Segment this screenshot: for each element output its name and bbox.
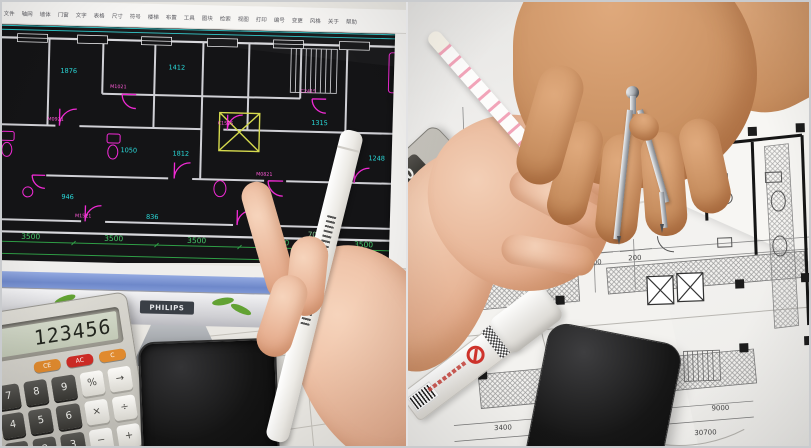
dim-3500: 3500 xyxy=(21,232,41,241)
door-label: M0821 xyxy=(256,171,273,177)
menu-item[interactable]: 视图 xyxy=(238,15,249,23)
dim-500: 500 xyxy=(588,258,602,266)
room-label: 946 xyxy=(61,193,74,201)
dim-3500: 3500 xyxy=(270,238,290,247)
key-9[interactable]: 9 xyxy=(51,374,78,401)
room-label: 1315 xyxy=(311,119,328,127)
door-label: M0921 xyxy=(47,116,64,122)
menu-item[interactable]: 工具 xyxy=(184,14,195,22)
menu-item[interactable]: 变更 xyxy=(292,16,303,24)
menu-item[interactable]: 检索 xyxy=(220,14,231,22)
door-label: C2415 xyxy=(300,89,316,95)
room-label: 1248 xyxy=(368,154,385,162)
key-divide[interactable]: ÷ xyxy=(111,394,138,421)
menu-item[interactable]: 尺寸 xyxy=(112,12,123,20)
menu-item[interactable]: 关于 xyxy=(328,17,339,25)
room-label: 1050 xyxy=(120,146,137,154)
room-label: 1412 xyxy=(169,63,186,71)
photo-collage: 1876 1412 1050 946 1812 1315 1248 836 M0… xyxy=(0,0,811,448)
key-5[interactable]: 5 xyxy=(28,407,55,434)
menu-item[interactable]: 编号 xyxy=(274,16,285,24)
room-label: 1812 xyxy=(172,149,189,157)
dim-3500: 3500 xyxy=(187,236,207,245)
dim-9000: 9000 xyxy=(711,404,729,413)
dim-inner: 7000 xyxy=(308,231,326,239)
smartphone xyxy=(138,338,280,446)
key-percent[interactable]: % xyxy=(79,370,106,397)
monitor-screen: 1876 1412 1050 946 1812 1315 1248 836 M0… xyxy=(2,17,407,263)
dim-3400: 3400 xyxy=(494,423,512,432)
menu-item[interactable]: 表格 xyxy=(94,11,105,19)
key-backspace[interactable]: → xyxy=(107,365,134,392)
monitor-brand-badge: PHILIPS xyxy=(140,300,194,314)
dim-30700: 30700 xyxy=(694,428,717,437)
menu-item[interactable]: 文字 xyxy=(76,11,87,19)
menu-item[interactable]: 帮助 xyxy=(346,18,357,26)
column-markers xyxy=(267,337,391,424)
key-1[interactable]: 1 xyxy=(4,440,31,446)
menu-item[interactable]: 墙体 xyxy=(40,10,51,18)
menu-item[interactable]: 风格 xyxy=(310,17,321,25)
door-label: M1521 xyxy=(75,213,92,219)
door-label: C1515 xyxy=(218,121,234,127)
photo-divider xyxy=(406,2,408,446)
menu-item[interactable]: 轴网 xyxy=(22,10,33,18)
menu-item[interactable]: 楼梯 xyxy=(148,13,159,21)
dim-3500: 3500 xyxy=(104,234,124,243)
key-plus[interactable]: + xyxy=(116,422,143,446)
key-2[interactable]: 2 xyxy=(32,436,59,446)
cad-floorplan-drawing: 1876 1412 1050 946 1812 1315 1248 836 M0… xyxy=(2,19,407,263)
left-photo-cad-monitor-scene: 1876 1412 1050 946 1812 1315 1248 836 M0… xyxy=(2,2,407,446)
door-label: M1021 xyxy=(110,84,127,90)
menu-item[interactable]: 布置 xyxy=(166,13,177,21)
right-photo-blueprint-scene: 500 200 3400 9000 30700 0 0 1 4 xyxy=(407,2,809,446)
cad-viewport: 1876 1412 1050 946 1812 1315 1248 836 M0… xyxy=(2,19,407,263)
key-3[interactable]: 3 xyxy=(60,431,87,446)
menu-item[interactable]: 门窗 xyxy=(58,11,69,19)
key-4[interactable]: 4 xyxy=(2,412,26,439)
room-label: 1876 xyxy=(60,67,77,75)
menu-item[interactable]: 符号 xyxy=(130,12,141,20)
dim-200: 200 xyxy=(628,254,642,262)
key-minus[interactable]: − xyxy=(88,427,115,446)
key-7[interactable]: 7 xyxy=(2,383,22,410)
key-8[interactable]: 8 xyxy=(23,379,50,406)
room-label: 836 xyxy=(146,213,159,221)
key-multiply[interactable]: × xyxy=(83,398,110,425)
monitor-brand-label: PHILIPS xyxy=(149,303,184,312)
dim-3500: 3500 xyxy=(354,240,374,249)
menu-item[interactable]: 打印 xyxy=(256,15,267,23)
menu-item[interactable]: 文件 xyxy=(4,9,15,17)
key-6[interactable]: 6 xyxy=(56,403,83,430)
menu-item[interactable]: 图块 xyxy=(202,14,213,22)
